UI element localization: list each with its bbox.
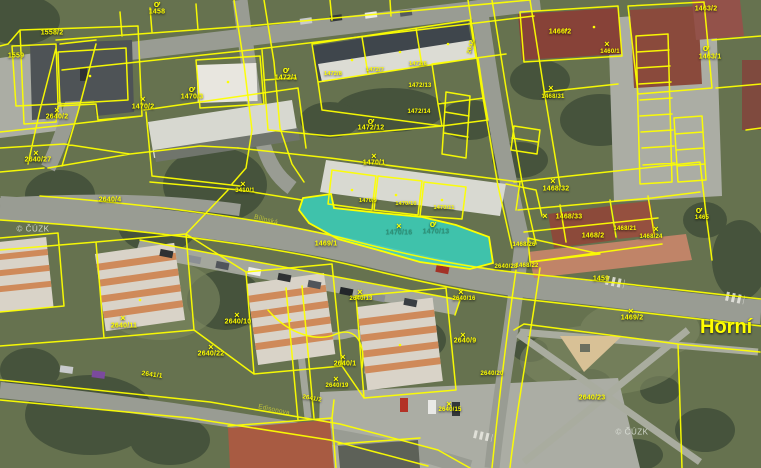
land-use-cross-symbol: × [340, 354, 345, 360]
parcel-number-label[interactable]: 1472/7 [366, 67, 384, 73]
land-use-garden-symbol: ơ [430, 221, 437, 227]
parcel-number-label[interactable]: 1472/14 [407, 109, 430, 115]
land-use-cross-symbol: × [396, 223, 401, 229]
parcel-number-label[interactable]: 1468/2 [582, 233, 605, 240]
land-use-cross-symbol: × [208, 344, 213, 350]
parcel-number-label[interactable]: 2640/11 [111, 323, 137, 330]
parcel-number-label[interactable]: 1472/13 [408, 83, 431, 89]
parcel-number-label[interactable]: 1459 [593, 276, 609, 283]
parcel-number-label[interactable]: 2640/27 [25, 157, 52, 164]
land-use-cross-symbol: × [548, 85, 553, 91]
parcel-number-label[interactable]: 3410/1 [235, 188, 255, 194]
parcel-number-label[interactable]: 1469/1 [315, 241, 338, 248]
parcel-number-label[interactable]: 1558/2 [41, 30, 64, 37]
parcel-number-label[interactable]: 2640/23 [579, 395, 606, 402]
parcel-number-label[interactable]: 1468/32 [543, 186, 570, 193]
land-use-cross-symbol: × [653, 226, 658, 232]
parcel-number-label[interactable]: 1468/31 [541, 94, 564, 100]
cadastral-area-label: Horní [700, 316, 752, 339]
parcel-number-label[interactable]: 1463/2 [695, 6, 718, 13]
parcel-number-label[interactable]: 2642 [466, 39, 475, 54]
parcel-number-label[interactable]: 1468/24 [639, 234, 662, 240]
land-use-cross-symbol: × [333, 376, 338, 382]
parcel-number-label[interactable]: 1470/10 [395, 201, 416, 207]
land-use-cross-symbol: × [458, 289, 463, 295]
parcel-number-label[interactable]: 1458 [149, 9, 165, 16]
parcel-number-label[interactable]: 2640/13 [349, 296, 372, 302]
parcel-number-label[interactable]: 1469/2 [621, 315, 644, 322]
parcel-number-label[interactable]: 2640/22 [198, 351, 225, 358]
land-use-garden-symbol: ơ [703, 45, 710, 51]
parcel-number-label[interactable]: 1470/9 [359, 198, 377, 204]
parcel-number-label[interactable]: 2640/15 [438, 407, 461, 413]
parcel-number-label[interactable]: 1472/8 [324, 71, 342, 77]
parcel-number-label[interactable]: 1468/26 [512, 242, 535, 248]
cuzk-watermark: © ČÚZK [17, 225, 50, 234]
land-use-garden-symbol: ơ [696, 207, 703, 213]
land-use-cross-symbol: × [33, 150, 38, 156]
map-labels-layer: ×××××××××××××××××××××ơơơơơơơ1558/2155914… [0, 0, 761, 468]
parcel-number-label[interactable]: 2640/2 [46, 114, 69, 121]
parcel-number-label[interactable]: 2640/1 [334, 361, 357, 368]
cuzk-watermark: © ČÚZK [616, 428, 649, 437]
parcel-number-label[interactable]: 1470/3 [181, 94, 204, 101]
parcel-number-label[interactable]: 1472/12 [358, 125, 385, 132]
cadastral-map-view[interactable]: ×××××××××××××××××××××ơơơơơơơ1558/2155914… [0, 0, 761, 468]
parcel-number-label[interactable]: 1470/2 [132, 104, 155, 111]
land-use-cross-symbol: × [140, 96, 145, 102]
parcel-number-label[interactable]: 1468/21 [613, 226, 636, 232]
land-use-cross-symbol: × [542, 213, 547, 219]
parcel-number-label[interactable]: 2640/16 [452, 296, 475, 302]
parcel-number-label[interactable]: 2640/4 [99, 197, 122, 204]
land-use-cross-symbol: × [240, 181, 245, 187]
land-use-garden-symbol: ơ [283, 67, 290, 73]
selected-parcel-number-label[interactable]: 1470/13 [423, 229, 450, 236]
parcel-number-label[interactable]: 1465 [695, 215, 709, 221]
land-use-garden-symbol: ơ [189, 86, 196, 92]
land-use-garden-symbol: ơ [154, 1, 161, 7]
land-use-cross-symbol: × [54, 107, 59, 113]
parcel-number-label[interactable]: 2640/10 [225, 319, 252, 326]
parcel-number-label[interactable]: 2641/2 [302, 394, 322, 403]
land-use-cross-symbol: × [371, 153, 376, 159]
land-use-garden-symbol: ơ [368, 118, 375, 124]
land-use-cross-symbol: × [604, 41, 609, 47]
street-name-label: Bílinská [253, 214, 278, 227]
parcel-number-label[interactable]: 1472/1 [275, 75, 298, 82]
parcel-number-label[interactable]: 2641/1 [141, 370, 163, 380]
land-use-cross-symbol: × [628, 308, 633, 314]
parcel-number-label[interactable]: 1468/22 [515, 263, 538, 269]
parcel-number-label[interactable]: 1472/6 [409, 61, 427, 67]
parcel-number-label[interactable]: 1466/2 [549, 29, 572, 36]
land-use-cross-symbol: × [120, 315, 125, 321]
street-name-label: Edisonova [258, 403, 291, 417]
land-use-cross-symbol: × [234, 312, 239, 318]
land-use-cross-symbol: × [550, 178, 555, 184]
parcel-number-label[interactable]: 2640/20 [480, 371, 503, 377]
parcel-number-label[interactable]: 1470/1 [363, 160, 386, 167]
land-use-cross-symbol: × [357, 289, 362, 295]
parcel-number-label[interactable]: 2640/19 [325, 383, 348, 389]
parcel-number-label[interactable]: 1468/33 [556, 214, 583, 221]
parcel-number-label[interactable]: 1470/11 [434, 205, 455, 211]
parcel-number-label[interactable]: 2640/9 [454, 338, 477, 345]
parcel-number-label[interactable]: 1460/1 [600, 49, 620, 55]
parcel-number-label[interactable]: 2640/28 [494, 264, 517, 270]
parcel-number-label[interactable]: 1463/1 [699, 54, 722, 61]
parcel-number-label[interactable]: 1559 [8, 53, 24, 60]
selected-parcel-number-label[interactable]: 1470/16 [386, 230, 413, 237]
